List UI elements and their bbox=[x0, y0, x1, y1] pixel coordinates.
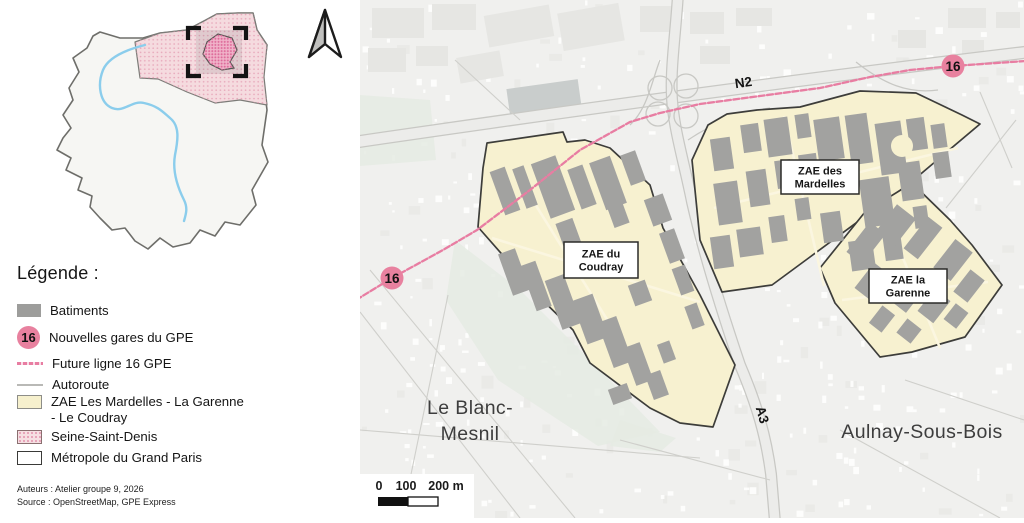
inset-locator-map bbox=[0, 0, 360, 260]
map-canvas: 1616ZAE duCoudrayZAE desMardellesZAE laG… bbox=[360, 0, 1024, 518]
legend-title: Légende : bbox=[17, 263, 99, 284]
svg-text:Coudray: Coudray bbox=[579, 262, 625, 274]
buildings-swatch bbox=[17, 304, 41, 317]
line16-swatch bbox=[17, 362, 43, 365]
left-panel: Légende : Batiments 16 Nouvelles gares d… bbox=[0, 0, 360, 518]
main-map: 1616ZAE duCoudrayZAE desMardellesZAE laG… bbox=[360, 0, 1024, 518]
motorway-swatch bbox=[17, 384, 43, 386]
zae-swatch bbox=[17, 395, 42, 409]
metropole-swatch bbox=[17, 451, 42, 465]
svg-text:16: 16 bbox=[384, 271, 400, 286]
legend-item-metropole: Métropole du Grand Paris bbox=[17, 450, 202, 466]
legend-item-gares-gpe: 16 Nouvelles gares du GPE bbox=[17, 326, 193, 349]
svg-text:Mardelles: Mardelles bbox=[795, 179, 846, 191]
legend-item-autoroute: Autoroute bbox=[17, 377, 109, 393]
svg-text:0: 0 bbox=[376, 479, 383, 493]
svg-text:Garenne: Garenne bbox=[886, 288, 931, 300]
svg-text:100: 100 bbox=[396, 479, 417, 493]
svg-text:Mesnil: Mesnil bbox=[441, 423, 500, 445]
seine-saint-denis-swatch bbox=[17, 430, 42, 444]
map-figure: { "colors": { "rail_pink": "#e87da2", "s… bbox=[0, 0, 1024, 518]
svg-text:16: 16 bbox=[945, 59, 961, 74]
credits: Auteurs : Atelier groupe 9, 2026 Source … bbox=[17, 483, 176, 509]
legend-item-zae: ZAE Les Mardelles - La Garenne - Le Coud… bbox=[17, 394, 244, 425]
svg-text:N2: N2 bbox=[734, 74, 753, 91]
svg-text:Le Blanc-: Le Blanc- bbox=[427, 397, 513, 419]
svg-text:ZAE des: ZAE des bbox=[798, 166, 842, 178]
north-arrow-icon bbox=[309, 10, 341, 57]
scale-bar: 0100200 m bbox=[360, 474, 474, 518]
credit-authors: Auteurs : Atelier groupe 9, 2026 bbox=[17, 483, 176, 496]
svg-text:Aulnay-Sous-Bois: Aulnay-Sous-Bois bbox=[841, 421, 1002, 443]
credit-source: Source : OpenStreetMap, GPE Express bbox=[17, 496, 176, 509]
station-16-badge: 16 bbox=[17, 326, 40, 349]
svg-text:ZAE la: ZAE la bbox=[891, 275, 926, 287]
svg-text:ZAE du: ZAE du bbox=[582, 249, 621, 261]
legend-item-seine-saint-denis: Seine-Saint-Denis bbox=[17, 429, 157, 445]
legend-item-batiments: Batiments bbox=[17, 303, 109, 319]
svg-text:200 m: 200 m bbox=[428, 479, 463, 493]
legend-item-ligne-16: Future ligne 16 GPE bbox=[17, 356, 172, 372]
